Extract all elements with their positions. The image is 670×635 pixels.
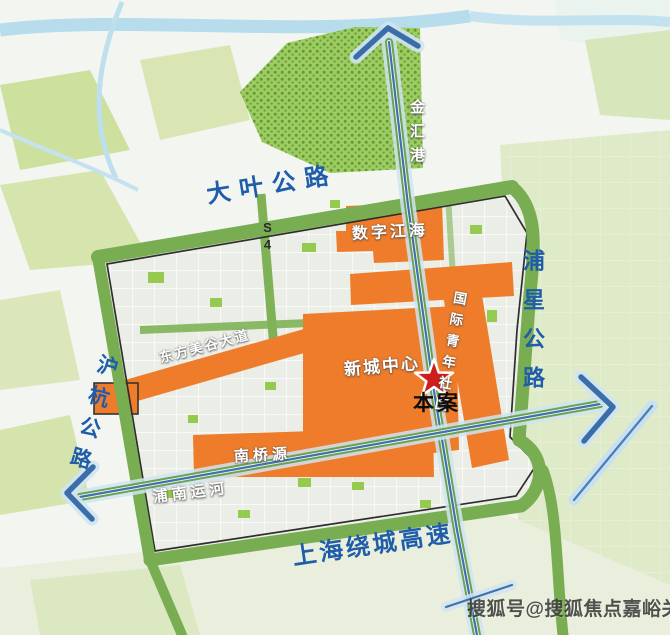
area-label-nanqiaoyuan: 南桥源 — [234, 447, 292, 465]
waterway-label-jinhui: 金汇港 — [409, 99, 424, 171]
road-label-s4: S4 — [261, 220, 274, 254]
watermark: 搜狐号@搜狐焦点嘉峪关站 — [467, 600, 670, 619]
location-map: 大叶公路 浦星公路 沪杭公路 上海绕城高速 金汇港 浦南运河 S4 数字江海 新… — [0, 0, 670, 635]
project-marker-label: 本案 — [413, 393, 461, 414]
road-label-puxing: 浦星公路 — [521, 249, 543, 405]
